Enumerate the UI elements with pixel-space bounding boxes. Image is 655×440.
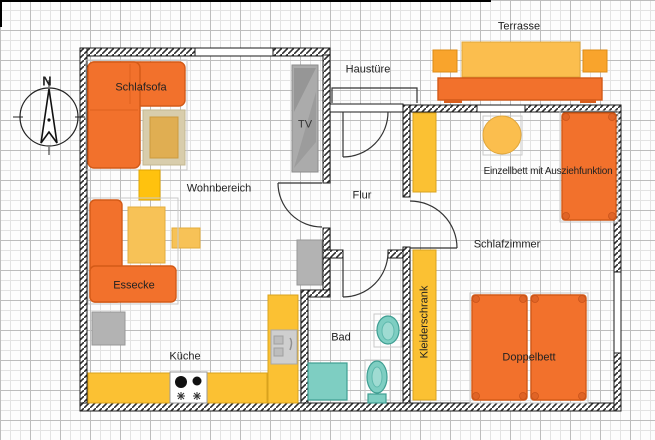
livingroom-door-arc: [278, 183, 322, 227]
stove-burner-large: [175, 376, 187, 388]
wall-bedroom-west-upper: [403, 105, 410, 197]
wall-flur-west-lower: [323, 228, 330, 295]
label-haustuere: Haustüre: [346, 65, 391, 76]
window-right: [614, 272, 621, 353]
compass: [13, 80, 85, 155]
terrace-bench: [438, 78, 602, 100]
stove-star-right: [193, 392, 201, 400]
wall-right-lower: [614, 353, 621, 411]
label-einzellbett: Einzellbett mit Ausziehfunktion: [484, 167, 613, 177]
double-bed-post: [532, 296, 539, 303]
window-living-top: [195, 48, 273, 56]
toilet-bowl-inner: [372, 367, 382, 387]
wall-bad-west: [301, 290, 308, 403]
single-bed-post: [563, 213, 570, 220]
wall-bedroom-west-lower: [403, 247, 410, 403]
wall-flur-south-left: [323, 250, 343, 258]
entry-door-frame: [332, 88, 417, 103]
floorplan-drawing: [0, 0, 655, 440]
wardrobe-upper: [413, 113, 436, 192]
gray-cabinet-square: [92, 312, 125, 345]
entry-door-arc: [343, 112, 388, 157]
single-bed-post: [609, 213, 616, 220]
label-flur: Flur: [353, 191, 372, 202]
single-bed-post: [563, 114, 570, 121]
double-bed-post: [520, 296, 527, 303]
shower: [308, 363, 347, 400]
single-bed-post: [609, 114, 616, 121]
terrace-chair-left: [433, 50, 457, 72]
stove: [170, 372, 207, 403]
side-stool: [172, 228, 200, 248]
label-schlafsofa: Schlafsofa: [115, 83, 166, 94]
wall-bottom: [80, 403, 621, 411]
double-bed-post: [520, 393, 527, 400]
floorplan-canvas: Terrasse Haustüre Schlafsofa TV Wohnbere…: [0, 0, 655, 440]
label-schlafzimmer: Schlafzimmer: [474, 240, 541, 251]
terrace-table: [462, 42, 580, 77]
label-terrasse: Terrasse: [498, 22, 540, 33]
wall-flur-west-upper: [323, 55, 330, 183]
terrace-bench-foot-left: [444, 99, 462, 103]
dining-chair: [139, 170, 160, 200]
wall-flur-south-right: [388, 250, 403, 258]
label-compass-north: N: [42, 75, 51, 88]
label-kueche: Küche: [169, 352, 200, 363]
label-doppelbett: Doppelbett: [502, 353, 555, 364]
round-table: [483, 116, 521, 154]
kitchen-sink-basin-1: [274, 336, 283, 344]
window-terrace-door: [477, 105, 525, 112]
label-kleiderschrank: Kleiderschrank: [420, 286, 431, 359]
stove-burner-small: [193, 377, 202, 386]
double-bed-post: [473, 296, 480, 303]
toilet-tank: [368, 394, 386, 403]
label-tv: TV: [298, 120, 312, 131]
double-bed-post: [532, 393, 539, 400]
double-bed-post: [473, 393, 480, 400]
kitchen-sink-unit: [271, 330, 297, 364]
compass-needle: [41, 89, 57, 143]
bedroom-door-arc: [410, 201, 457, 248]
wall-living-top-left: [80, 48, 195, 56]
kitchen-sink-basin-2: [274, 348, 283, 356]
dining-table: [128, 207, 165, 263]
stove-star-left: [177, 392, 185, 400]
double-bed-left: [472, 295, 527, 400]
terrace-bench-foot-right: [580, 99, 596, 103]
label-wohnbereich: Wohnbereich: [187, 184, 252, 195]
double-bed-post: [579, 393, 586, 400]
tv-lowboard: [297, 240, 322, 285]
double-bed-post: [579, 296, 586, 303]
entry-threshold: [330, 104, 403, 112]
label-bad: Bad: [331, 333, 351, 344]
label-essecke: Essecke: [113, 281, 155, 292]
wall-living-top-right: [273, 48, 330, 56]
double-bed-right: [531, 295, 586, 400]
sleeper-sofa-side: [88, 62, 140, 168]
compass-center-dot: [47, 118, 50, 121]
bathroom-sink-basin: [382, 322, 394, 340]
wall-bedroom-top-left: [410, 105, 477, 112]
terrace-chair-right: [583, 50, 607, 72]
bathroom-door-arc: [343, 252, 388, 297]
rug-inner: [150, 117, 178, 158]
